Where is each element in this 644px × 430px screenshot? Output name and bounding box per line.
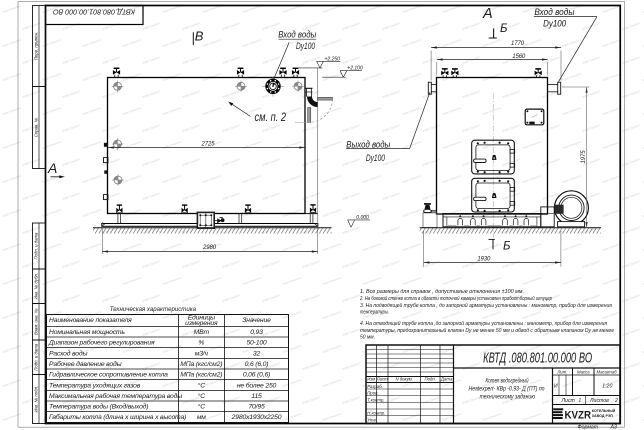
svg-text:Наименование показателя: Наименование показателя: [49, 317, 132, 324]
svg-text:Подп. и дата: Подп. и дата: [33, 232, 38, 260]
svg-text:70/95: 70/95: [248, 404, 265, 411]
svg-text:2980: 2980: [202, 245, 217, 251]
svg-text:KVZR: KVZR: [565, 410, 592, 422]
svg-text:1975: 1975: [581, 150, 587, 164]
svg-text:Диапазон рабочего регулировани: Диапазон рабочего регулирования: [48, 339, 155, 347]
svg-text:температуры, предохранительный: температуры, предохранительный клапан Dу…: [360, 327, 614, 334]
svg-text:Разраб.: Разраб.: [367, 384, 383, 389]
svg-text:Температура уходящих газов: Температура уходящих газов: [49, 381, 141, 389]
svg-text:4. На отводящей трубе котла ,д: 4. На отводящей трубе котла ,до запорной…: [360, 320, 607, 327]
svg-text:Справ. №: Справ. №: [33, 117, 38, 137]
svg-text:2: 2: [614, 398, 618, 404]
svg-text:Б: Б: [503, 241, 511, 253]
svg-text:В: В: [195, 29, 204, 44]
svg-text:1: 1: [578, 398, 581, 404]
svg-text:Температура воды (Вход/выход): Температура воды (Вход/выход): [49, 403, 148, 411]
svg-text:ЗАВОД РЭП: ЗАВОД РЭП: [592, 414, 614, 418]
svg-text:Гидравлическое сопротивление к: Гидравлическое сопротивление котла: [49, 371, 168, 379]
svg-text:КОТЕЛЬНЫЙ: КОТЕЛЬНЫЙ: [592, 409, 616, 413]
svg-text:Габариты котла (длина х ширина: Габариты котла (длина х ширина х высота): [49, 413, 186, 421]
svg-text:МПа (кгс/см2): МПа (кгс/см2): [180, 361, 222, 368]
svg-text:Вход воды: Вход воды: [278, 29, 316, 40]
svg-text:Лист: Лист: [376, 377, 388, 382]
svg-text:А3: А3: [610, 424, 617, 430]
svg-text:%: %: [198, 340, 204, 347]
svg-text:Подп. и дата: Подп. и дата: [33, 343, 38, 371]
svg-text:МВт: МВт: [194, 329, 210, 336]
svg-text:0,93: 0,93: [250, 329, 263, 336]
svg-text:Дата: Дата: [440, 377, 453, 382]
svg-text:Dy100: Dy100: [296, 41, 315, 51]
svg-text:Котел водогрейный: Котел водогрейный: [486, 378, 529, 385]
svg-text:Н.контр.: Н.контр.: [367, 411, 385, 416]
svg-text:Инв. № дубл.: Инв. № дубл.: [33, 273, 38, 299]
svg-text:°С: °С: [198, 392, 206, 400]
svg-text:см. п. 2: см. п. 2: [255, 110, 287, 124]
svg-text:N докум.: N докум.: [396, 377, 413, 382]
svg-text:Перв. примен.: Перв. примен.: [33, 32, 38, 61]
svg-text:2725: 2725: [201, 142, 216, 148]
svg-text:Рабочее давление воды: Рабочее давление воды: [49, 360, 122, 368]
svg-text:м3/ч: м3/ч: [195, 350, 209, 357]
svg-text:Б: Б: [500, 23, 508, 35]
svg-text:Утв.: Утв.: [367, 417, 377, 422]
svg-text:измерения: измерения: [185, 320, 218, 327]
svg-text:Максимальная рабочая температу: Максимальная рабочая температура воды: [49, 392, 182, 400]
svg-text:Лист: Лист: [561, 398, 576, 404]
svg-text:температуры.: температуры.: [360, 310, 389, 316]
svg-text:Номинальная мощность: Номинальная мощность: [49, 329, 125, 336]
svg-text:Изм: Изм: [367, 377, 375, 382]
svg-text:КВТД.080.801.00.000 ВО: КВТД.080.801.00.000 ВО: [53, 8, 135, 17]
svg-text:А: А: [47, 160, 57, 176]
svg-text:Масштаб: Масштаб: [596, 370, 617, 375]
svg-text:Формат: Формат: [578, 424, 599, 430]
svg-text:А: А: [482, 6, 493, 22]
svg-text:И: И: [554, 384, 558, 390]
svg-text:1:20: 1:20: [602, 384, 612, 390]
svg-text:32: 32: [253, 350, 261, 357]
svg-text:Т.контр.: Т.контр.: [367, 397, 384, 402]
svg-text:Листов: Листов: [589, 398, 609, 404]
svg-text:Масса: Масса: [577, 370, 590, 375]
svg-text:Dy100: Dy100: [543, 18, 566, 28]
svg-text:мм: мм: [197, 414, 206, 421]
svg-text:Инв. № подл.: Инв. № подл.: [33, 386, 38, 413]
svg-text:2980х1930х2250: 2980х1930х2250: [231, 414, 282, 421]
svg-text:0,6 (6,0): 0,6 (6,0): [245, 361, 269, 368]
svg-text:МПа (кгс/см2): МПа (кгс/см2): [180, 372, 222, 379]
svg-text:Heatexpert- КВр -0,93- Д (ПТ): Heatexpert- КВр -0,93- Д (ПТ) по: [469, 385, 545, 392]
svg-text:115: 115: [251, 393, 262, 400]
svg-text:не более 250: не более 250: [237, 381, 277, 389]
svg-text:Лит.: Лит.: [556, 370, 567, 375]
svg-text:Dy100: Dy100: [366, 153, 385, 163]
svg-text:2. На боковой стенке котла в о: 2. На боковой стенке котла в области топ…: [359, 295, 552, 302]
svg-text:50 мм.: 50 мм.: [360, 335, 375, 341]
svg-text:Техническая характеристика: Техническая характеристика: [110, 306, 197, 313]
svg-text:Подп.: Подп.: [424, 377, 435, 382]
svg-text:°С: °С: [198, 381, 206, 389]
svg-text:3. На подводящей трубе котла ,: 3. На подводящей трубе котла , до запорн…: [360, 302, 612, 309]
svg-text:1930: 1930: [477, 257, 491, 263]
svg-text:Взам. инв. №: Взам. инв. №: [33, 308, 38, 335]
svg-text:техническому заданию: техническому заданию: [480, 393, 536, 400]
svg-text:1. Все размеры для справок , д: 1. Все размеры для справок , допустимые …: [360, 289, 524, 295]
svg-text:КВТД .080.801.00.000 ВО: КВТД .080.801.00.000 ВО: [483, 350, 592, 367]
svg-text:Расход воды: Расход воды: [49, 349, 87, 357]
svg-text:50-100: 50-100: [246, 340, 266, 347]
svg-text:°С: °С: [198, 403, 206, 411]
svg-text:1560: 1560: [512, 54, 526, 60]
svg-text:0,06 (0,6): 0,06 (0,6): [243, 372, 270, 379]
svg-text:1770: 1770: [511, 41, 525, 47]
svg-text:Значение: Значение: [242, 317, 271, 324]
svg-text:Пров.: Пров.: [367, 391, 378, 396]
